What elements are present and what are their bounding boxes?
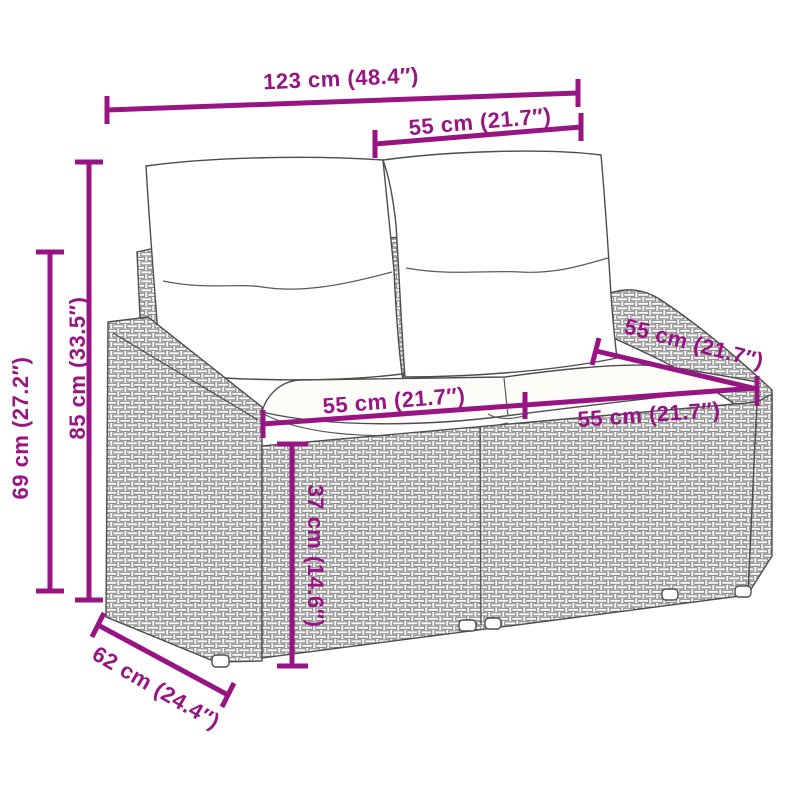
dim-arm-height-line bbox=[36, 252, 64, 591]
back-cushion-right bbox=[383, 151, 617, 377]
foot bbox=[662, 589, 678, 600]
foot bbox=[459, 620, 476, 631]
dim-label-arm-height: 69 cm (27.2″) bbox=[10, 356, 32, 499]
foot bbox=[212, 655, 229, 667]
base-front bbox=[262, 402, 757, 658]
foot bbox=[735, 586, 751, 597]
foot bbox=[485, 618, 501, 629]
dim-label-seat-height: 37 cm (14.6″) bbox=[304, 484, 326, 627]
dim-label-total-height: 85 cm (33.5″) bbox=[67, 296, 89, 439]
product-dimension-diagram: 123 cm (48.4″) 55 cm (21.7″) 85 cm (33.5… bbox=[0, 0, 800, 800]
